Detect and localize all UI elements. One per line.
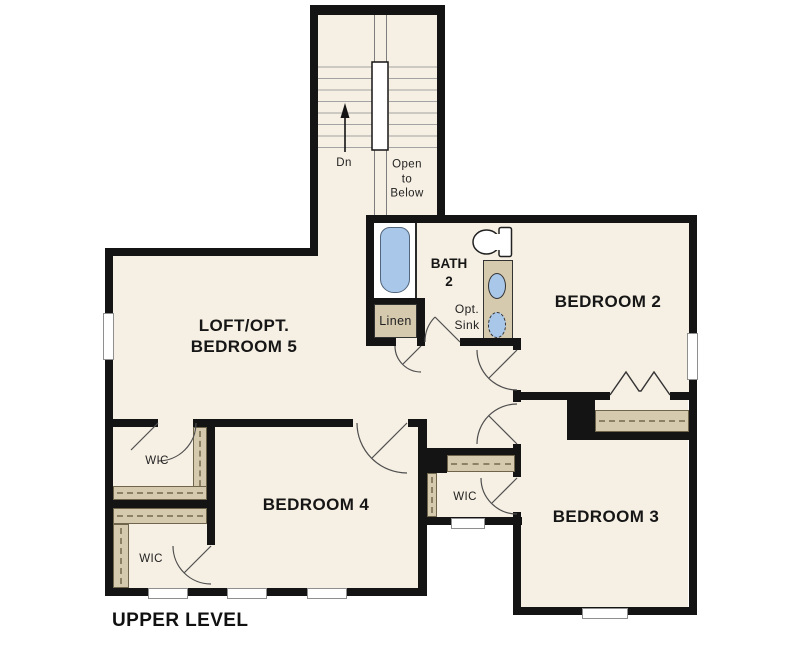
- door-arc: [425, 317, 435, 342]
- page-title: UPPER LEVEL: [112, 610, 248, 632]
- stairs-arrow-head: [341, 103, 350, 118]
- open-to-below-label: Open to Below: [390, 157, 423, 201]
- loft-label-line2: BEDROOM 5: [191, 336, 298, 357]
- door-leaf: [489, 416, 517, 444]
- opt-sink-label: Opt. Sink: [455, 301, 480, 333]
- stairs-down-label: Dn: [336, 157, 352, 169]
- opt-sink-label-line2: Sink: [455, 317, 480, 333]
- door-leaf: [131, 423, 158, 450]
- bath-label-line1: BATH: [431, 255, 468, 273]
- open-to-below-line1: Open: [390, 157, 423, 172]
- bifold-door: [610, 372, 670, 395]
- bedroom2-label: BEDROOM 2: [555, 292, 662, 312]
- door-leaf: [403, 346, 421, 364]
- floor-plan: LOFT/OPT. BEDROOM 5 BEDROOM 2 BEDROOM 3 …: [0, 0, 810, 648]
- door-leaf: [184, 546, 211, 573]
- wic-bedroom3-label: WIC: [453, 491, 477, 503]
- open-to-below-line3: Below: [390, 186, 423, 201]
- door-leaf: [489, 350, 517, 378]
- door-leaf: [492, 478, 517, 503]
- wic-upper-label: WIC: [145, 455, 169, 467]
- bath-label: BATH 2: [431, 255, 468, 291]
- open-to-below-line2: to: [390, 172, 423, 187]
- bath-label-line2: 2: [431, 273, 468, 291]
- bedroom4-label: BEDROOM 4: [263, 495, 370, 515]
- door-swings: [131, 317, 517, 584]
- wic-lower-label: WIC: [139, 553, 163, 565]
- opt-sink-label-line1: Opt.: [455, 301, 480, 317]
- loft-label: LOFT/OPT. BEDROOM 5: [191, 315, 298, 357]
- stair-railing: [372, 62, 388, 150]
- linen-label: Linen: [379, 314, 412, 328]
- loft-label-line1: LOFT/OPT.: [191, 315, 298, 336]
- toilet-joint: [496, 234, 502, 250]
- door-leaf: [372, 423, 407, 458]
- bedroom3-label: BEDROOM 3: [553, 507, 660, 527]
